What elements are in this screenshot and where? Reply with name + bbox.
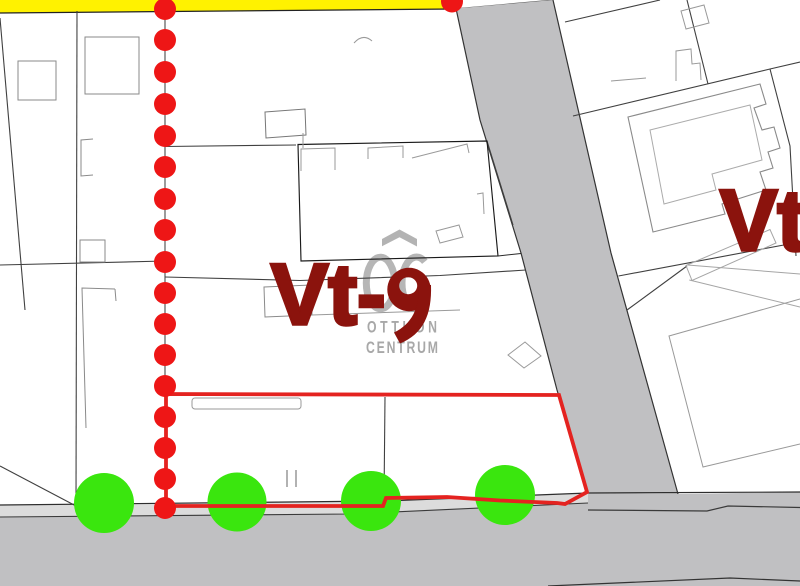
- svg-text:Vt: Vt: [720, 173, 800, 269]
- svg-text:Vt-: Vt-: [271, 247, 386, 343]
